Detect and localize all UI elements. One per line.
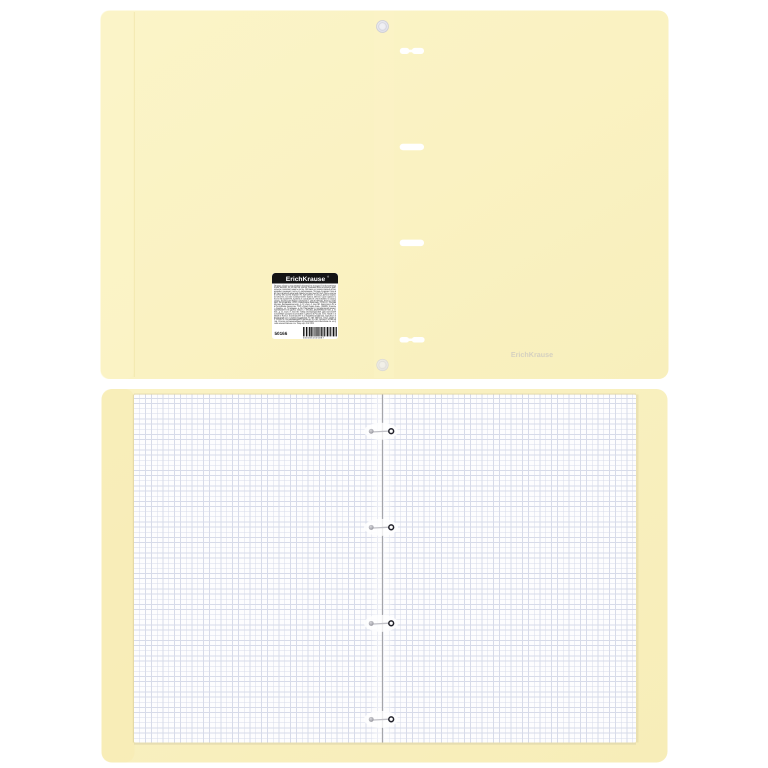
svg-text:ErichKrause: ErichKrause	[286, 276, 326, 283]
svg-text:ErichKrause: ErichKrause	[511, 350, 553, 359]
svg-text:®: ®	[327, 276, 329, 279]
svg-text:50166: 50166	[275, 331, 288, 336]
svg-text:4601851501867: 4601851501867	[303, 337, 325, 340]
svg-text:сайте www.erichkrause.com. Тов: сайте www.erichkrause.com. Товар серт. Е…	[274, 322, 315, 325]
